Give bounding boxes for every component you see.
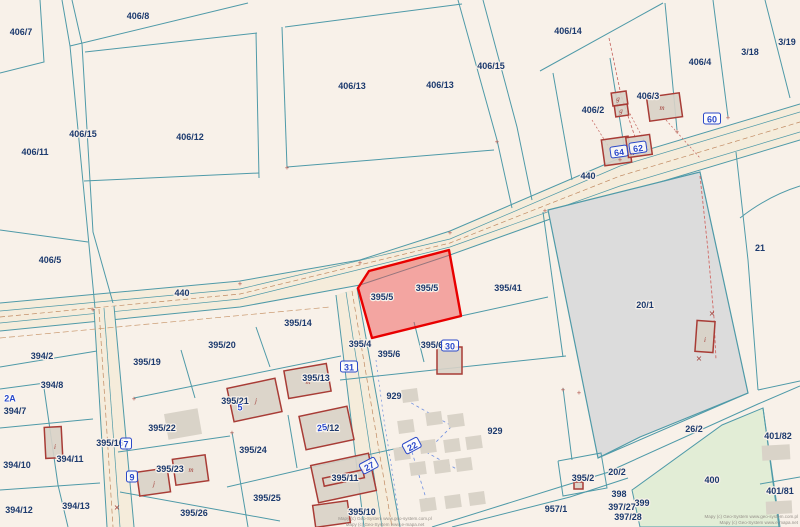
parcel-label-406-13: 406/13 (338, 81, 366, 91)
address-number: 5 (237, 403, 242, 413)
parcel-label-406-13: 406/13 (426, 80, 454, 90)
outbuilding (455, 457, 473, 472)
survey-point: + (132, 395, 136, 403)
address-marker-60[interactable]: 60 (704, 113, 721, 125)
parcel-boundary (72, 0, 82, 44)
parcel-label-394-10: 394/10 (3, 460, 31, 470)
survey-point: + (675, 128, 679, 136)
parcel-boundary (483, 0, 532, 200)
map-attribution: Mapy (c) Geo-System www.geo-system.com.p… (704, 514, 798, 526)
parcel-label-397-27: 397/27 (608, 502, 636, 512)
map-attribution: Mapy (c) Geo-System www.geo-system.com.p… (330, 516, 440, 527)
survey-point: + (561, 386, 565, 394)
parcel-label-26-2: 26/2 (685, 424, 703, 434)
survey-point: + (238, 280, 242, 288)
parcel-label-400: 400 (704, 475, 719, 485)
outbuilding (762, 444, 791, 460)
parcel-label-406-14: 406/14 (554, 26, 582, 36)
address-number: 7 (123, 440, 128, 450)
parcel-label-395-22: 395/22 (148, 423, 176, 433)
parcel-label-398: 398 (611, 489, 626, 499)
survey-point: + (448, 229, 452, 237)
attribution-line: Mapy (c) Geo-System www.geo-system.com.p… (704, 514, 798, 520)
parcel-label-406-15: 406/15 (477, 61, 505, 71)
survey-line (412, 452, 428, 505)
parcel-label-395-41: 395/41 (494, 283, 522, 293)
parcel-label-3-18: 3/18 (741, 47, 759, 57)
outbuilding (465, 435, 483, 450)
address-marker-64[interactable]: 64 (610, 145, 628, 159)
parcel-boundary (288, 415, 297, 468)
parcel-boundary (458, 0, 512, 208)
parcel-label-395-6: 395/6 (378, 349, 401, 359)
parcel-label-395-16: 395/16 (96, 438, 124, 448)
survey-point: + (577, 389, 581, 397)
parcel-label-406-5: 406/5 (39, 255, 62, 265)
parcel-label-406-3: 406/3 (637, 91, 660, 101)
parcel-label-394-2: 394/2 (31, 351, 54, 361)
address-marker-62[interactable]: 62 (629, 141, 647, 155)
building-use-letter: g (619, 107, 623, 115)
parcel-boundary (84, 173, 259, 181)
parcel-boundary (285, 4, 462, 27)
parcel-boundary (765, 0, 790, 98)
parcel-label-395-2: 395/2 (572, 473, 595, 483)
parcel-label-395-23: 395/23 (156, 464, 184, 474)
address-marker-7[interactable]: 7 (121, 438, 132, 450)
parcel-label-3-19: 3/19 (778, 37, 796, 47)
parcel-boundary (553, 73, 572, 180)
parcel-label-395-21: 395/21 (221, 396, 249, 406)
parcel-boundary (713, 0, 728, 117)
parcel-label-406-11: 406/11 (21, 147, 48, 157)
outbuilding (425, 411, 443, 426)
parcel-label-394-12: 394/12 (5, 505, 33, 515)
outbuilding (443, 438, 461, 453)
address-number: 25 (316, 422, 328, 434)
parcel-label-21: 21 (755, 243, 765, 253)
cadastral-map-canvas[interactable]: ++++++++++++++×××ggmmmjmijmi406/7406/840… (0, 0, 800, 527)
outbuilding (447, 413, 465, 428)
outbuilding (419, 497, 437, 512)
parcel-boundary (0, 483, 100, 490)
address-marker-25[interactable]: 25 (316, 422, 328, 434)
parcel-boundary (740, 186, 800, 218)
parcel-boundary (461, 297, 548, 316)
parcel-label-440: 440 (174, 288, 189, 298)
survey-point: + (230, 429, 234, 437)
parcel-label-440: 440 (580, 171, 595, 181)
parcel-boundary (256, 327, 270, 367)
parcel-label-394-7: 394/7 (4, 406, 27, 416)
parcel-label-395-4: 395/4 (349, 339, 372, 349)
building-use-letter: i (54, 443, 56, 451)
survey-point: + (91, 306, 95, 314)
parcel-label-395-20: 395/20 (208, 340, 236, 350)
parcel-label-929: 929 (487, 426, 502, 436)
survey-point: + (358, 259, 362, 267)
address-marker-30[interactable]: 30 (442, 340, 459, 352)
parcel-label-395-13: 395/13 (302, 373, 330, 383)
outbuilding (468, 491, 486, 506)
building-use-letter: j (254, 397, 257, 405)
parcel-label-20-1: 20/1 (636, 300, 654, 310)
building-use-letter: g (616, 95, 620, 103)
parcel-boundary (287, 150, 494, 167)
outbuilding (397, 419, 415, 434)
parcel-boundary (0, 230, 88, 242)
address-number: 60 (707, 115, 717, 125)
parcel-label-20-2: 20/2 (608, 467, 626, 477)
building-use-letter: m (188, 466, 193, 474)
parcel-boundary (563, 388, 572, 460)
survey-point: + (285, 164, 289, 172)
parcel-label-401-82: 401/82 (764, 431, 792, 441)
parcel-label-395-14: 395/14 (284, 318, 312, 328)
building (574, 482, 583, 489)
parcel-label-929: 929 (386, 391, 401, 401)
survey-point: + (543, 207, 547, 215)
survey-cross: × (696, 354, 703, 363)
building-use-letter: j (152, 480, 155, 488)
parcel-label-399: 399 (634, 498, 649, 508)
parcel-label-406-12: 406/12 (176, 132, 204, 142)
parcel-label-406-15: 406/15 (69, 129, 97, 139)
attribution-line: Mapy (c) Geo-System www.e-mapa.net (704, 520, 798, 526)
address-marker-2A[interactable]: 2A (4, 394, 16, 404)
parcel-label-406-4: 406/4 (689, 57, 712, 67)
survey-cross: × (114, 503, 121, 512)
outbuilding (444, 494, 462, 509)
parcel-label-406-2: 406/2 (582, 105, 605, 115)
address-number: 64 (613, 147, 624, 158)
building-outline (574, 482, 583, 489)
address-marker-31[interactable]: 31 (341, 361, 358, 373)
address-number: 30 (445, 342, 455, 352)
parcel-label-395-25: 395/25 (253, 493, 281, 503)
outbuilding (766, 500, 793, 514)
outbuilding (433, 459, 451, 474)
parcel-label-395-6: 395/6 (421, 340, 444, 350)
parcel-label-957-1: 957/1 (545, 504, 568, 514)
parcel-label-406-7: 406/7 (10, 27, 33, 37)
parcel-boundary (256, 33, 259, 178)
address-number: 9 (129, 473, 134, 483)
building-use-letter: i (704, 336, 706, 344)
parcel-boundary (62, 0, 95, 308)
parcel-label-395-5: 395/5 (416, 283, 439, 293)
parcel-label-395-11: 395/11 (331, 473, 358, 483)
building-use-letter: m (659, 104, 664, 112)
address-number: 62 (632, 143, 643, 154)
attribution-line: Mapy (c) Geo-System www.geo-system.com.p… (330, 516, 440, 522)
address-marker-9[interactable]: 9 (127, 471, 138, 483)
parcel-20-1 (548, 172, 748, 458)
map-layers: ++++++++++++++×××ggmmmjmijmi406/7406/840… (0, 0, 800, 527)
parcel-label-394-13: 394/13 (62, 501, 90, 511)
survey-cross: × (709, 309, 716, 318)
parcel-label-395-5: 395/5 (371, 292, 394, 302)
outbuilding (409, 461, 427, 476)
address-number: 31 (344, 363, 354, 373)
address-marker-5[interactable]: 5 (237, 403, 242, 413)
parcel-label-406-8: 406/8 (127, 11, 150, 21)
parcel-label-394-11: 394/11 (56, 454, 83, 464)
parcel-label-395-19: 395/19 (133, 357, 161, 367)
survey-point: + (726, 114, 730, 122)
attribution-line: Mapy (c) Geo-System www.e-mapa.net (330, 522, 440, 527)
address-number: 2A (4, 394, 16, 404)
parcel-boundary (282, 27, 287, 167)
parcel-label-395-24: 395/24 (239, 445, 267, 455)
outbuilding (401, 388, 419, 403)
survey-point: + (495, 138, 499, 146)
parcel-boundary (181, 350, 195, 398)
parcel-boundary (82, 44, 113, 303)
survey-line (609, 38, 636, 140)
parcel-boundary (540, 3, 663, 71)
parcel-label-395-26: 395/26 (180, 508, 208, 518)
parcel-label-401-81: 401/81 (766, 486, 794, 496)
parcel-label-397-28: 397/28 (614, 512, 642, 522)
parcel-boundary (70, 3, 248, 46)
outbuilding (419, 439, 437, 454)
parcel-label-394-8: 394/8 (41, 380, 64, 390)
